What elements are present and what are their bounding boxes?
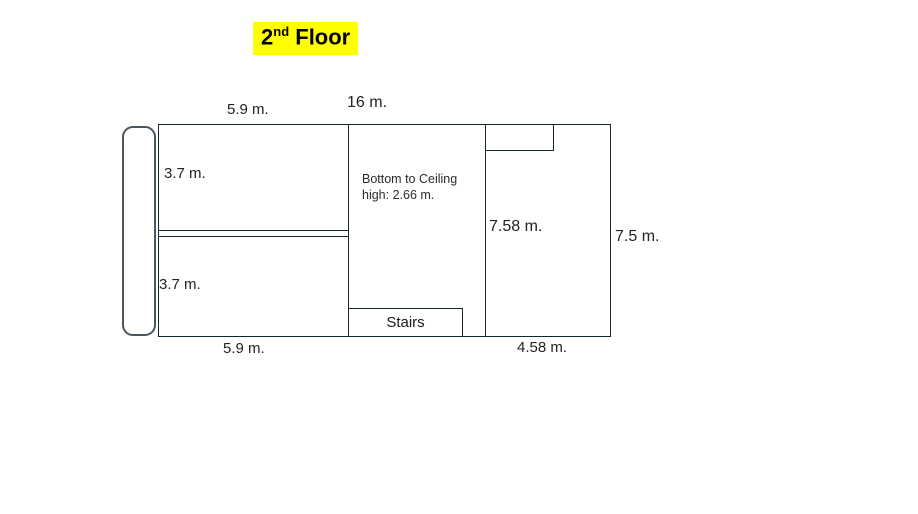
left-rounded-structure xyxy=(122,126,156,336)
stairs-label: Stairs xyxy=(386,314,424,331)
measurement-upper-room-height: 3.7 m. xyxy=(164,165,206,182)
interior-wall-right-divider xyxy=(485,124,486,337)
lower-room-top-wall xyxy=(158,236,348,237)
title-ordinal-superscript: nd xyxy=(273,24,289,39)
measurement-lower-room-height: 3.7 m. xyxy=(159,276,201,293)
stairs-box: Stairs xyxy=(348,308,463,337)
closet-notch-rectangle xyxy=(485,124,554,151)
measurement-overall-height: 7.5 m. xyxy=(615,228,659,246)
title-number: 2 xyxy=(261,24,273,49)
measurement-bottom-left-width: 5.9 m. xyxy=(223,340,265,357)
measurement-top-left-width: 5.9 m. xyxy=(227,101,269,118)
title-text: Floor xyxy=(289,24,350,49)
upper-room-bottom-wall xyxy=(158,230,348,231)
measurement-total-width: 16 m. xyxy=(347,94,387,112)
floor-plan-slide: 2nd Floor Stairs 5.9 m. 16 m. 3.7 m. 3.7… xyxy=(0,0,918,514)
ceiling-note-line2: high: 2.66 m. xyxy=(362,187,457,203)
ceiling-note-line1: Bottom to Ceiling xyxy=(362,171,457,187)
page-title: 2nd Floor xyxy=(253,22,358,55)
interior-wall-left-divider xyxy=(348,124,349,337)
ceiling-height-note: Bottom to Ceiling high: 2.66 m. xyxy=(362,171,457,203)
measurement-bottom-right-width: 4.58 m. xyxy=(517,339,567,356)
measurement-right-room-height: 7.58 m. xyxy=(489,218,542,236)
